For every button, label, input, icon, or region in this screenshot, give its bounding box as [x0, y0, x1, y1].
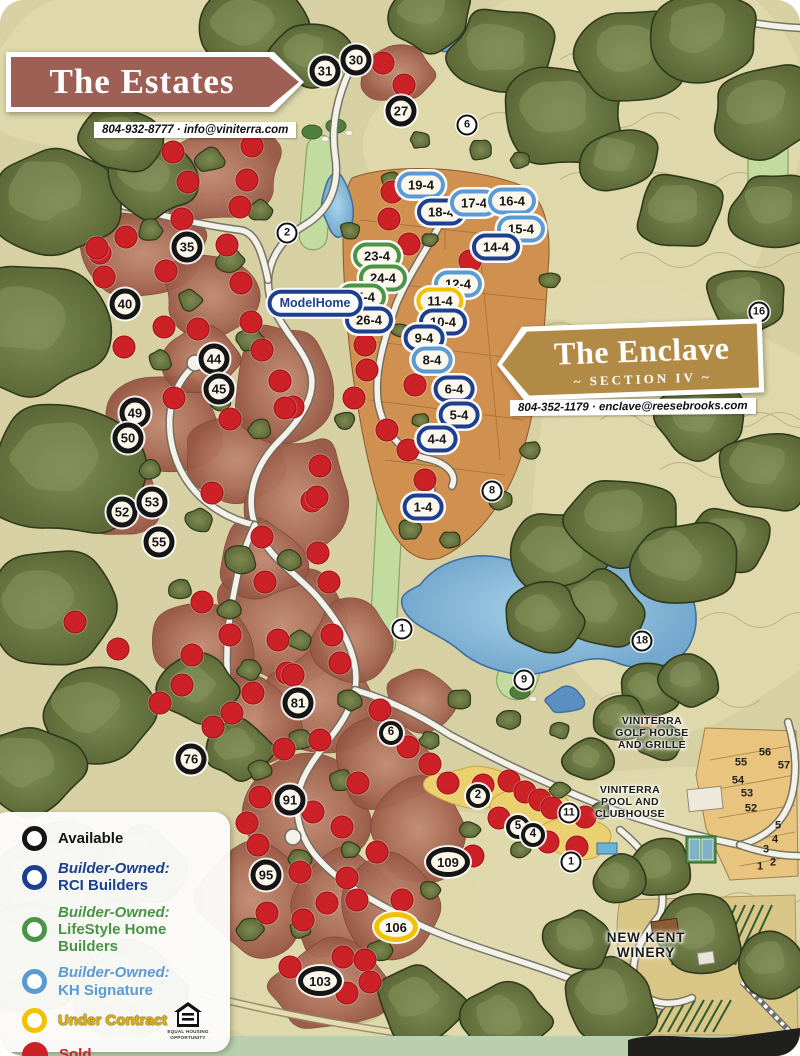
legend-rci-icon — [22, 865, 47, 890]
estates-banner-fill: The Estates — [11, 57, 299, 107]
legend-kh-icon — [22, 969, 47, 994]
legend-item-sold: Sold — [22, 1042, 230, 1056]
estates-banner: The Estates — [6, 52, 304, 112]
legend-card: AvailableBuilder-Owned:RCI BuildersBuild… — [0, 812, 230, 1052]
legend-available-label: Available — [58, 830, 123, 847]
equal-housing-icon — [173, 1001, 203, 1029]
enclave-subtitle: ~ SECTION IV ~ — [573, 369, 711, 390]
enclave-contact: 804-352-1179 · enclave@reesebrooks.com — [510, 398, 756, 416]
enclave-banner-fill: The Enclave ~ SECTION IV ~ — [501, 324, 759, 397]
legend-kh-label: Builder-Owned:KH Signature — [58, 964, 170, 999]
legend-available-icon — [22, 826, 47, 851]
legend-item-rci: Builder-Owned:RCI Builders — [22, 860, 230, 895]
winery-label: NEW KENTWINERY — [607, 930, 685, 960]
estates-contact: 804-932-8777 · info@viniterra.com — [94, 122, 296, 138]
legend-under_contract-icon — [22, 1008, 47, 1033]
legend-rci-label: Builder-Owned:RCI Builders — [58, 860, 170, 895]
estates-title: The Estates — [49, 62, 234, 102]
golf-house-label: VINITERRAGOLF HOUSEAND GRILLE — [615, 715, 688, 751]
legend-item-lifestyle: Builder-Owned:LifeStyle Home Builders — [22, 904, 230, 956]
enclave-title: The Enclave — [553, 329, 729, 372]
legend-lifestyle-icon — [22, 917, 47, 942]
legend-under_contract-label: Under Contract — [58, 1012, 167, 1029]
legend-item-available: Available — [22, 826, 230, 851]
pool-clubhouse-label: VINITERRAPOOL ANDCLUBHOUSE — [595, 784, 665, 820]
legend-sold-label: Sold — [59, 1046, 92, 1056]
site-plan-map: 3130273540444549505253558176919510910362… — [0, 0, 800, 1056]
enclave-banner: The Enclave ~ SECTION IV ~ — [496, 318, 764, 401]
legend-lifestyle-label: Builder-Owned:LifeStyle Home Builders — [58, 904, 230, 956]
legend-sold-icon — [22, 1042, 48, 1056]
equal-housing-caption: EQUAL HOUSING OPPORTUNITY — [166, 1029, 210, 1040]
legend-item-kh: Builder-Owned:KH Signature — [22, 964, 230, 999]
equal-housing-logo: EQUAL HOUSING OPPORTUNITY — [166, 1001, 210, 1040]
